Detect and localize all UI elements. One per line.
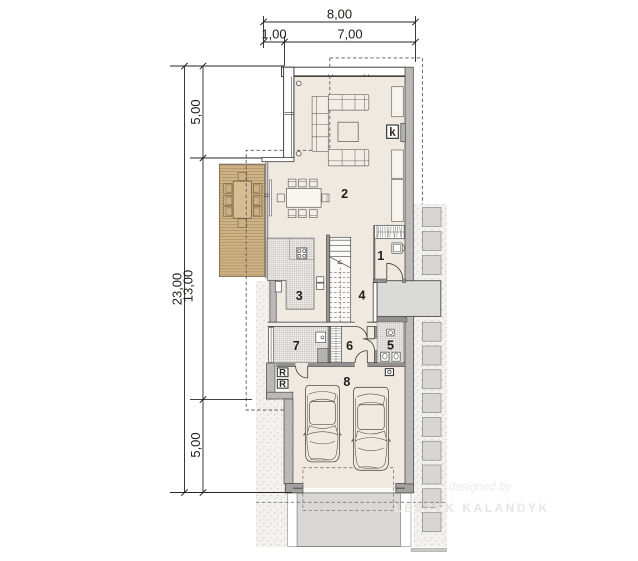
svg-text:8,00: 8,00 <box>327 7 352 22</box>
svg-text:designed by: designed by <box>449 482 512 494</box>
svg-text:1,00: 1,00 <box>261 27 286 42</box>
svg-text:1: 1 <box>377 249 384 263</box>
svg-text:13,00: 13,00 <box>181 270 196 303</box>
svg-text:4: 4 <box>359 288 366 302</box>
svg-text:LESZEK KALANDYK: LESZEK KALANDYK <box>394 501 550 515</box>
svg-text:8: 8 <box>343 375 350 389</box>
svg-text:5,00: 5,00 <box>188 432 203 457</box>
svg-text:k: k <box>389 127 396 139</box>
svg-text:6: 6 <box>346 339 353 353</box>
svg-text:2: 2 <box>341 187 348 201</box>
svg-text:7,00: 7,00 <box>337 27 362 42</box>
svg-text:R: R <box>279 367 286 378</box>
svg-text:R: R <box>279 379 286 390</box>
svg-text:3: 3 <box>296 289 303 303</box>
svg-text:7: 7 <box>293 339 300 353</box>
svg-text:5,00: 5,00 <box>188 99 203 124</box>
svg-text:5: 5 <box>387 338 394 352</box>
